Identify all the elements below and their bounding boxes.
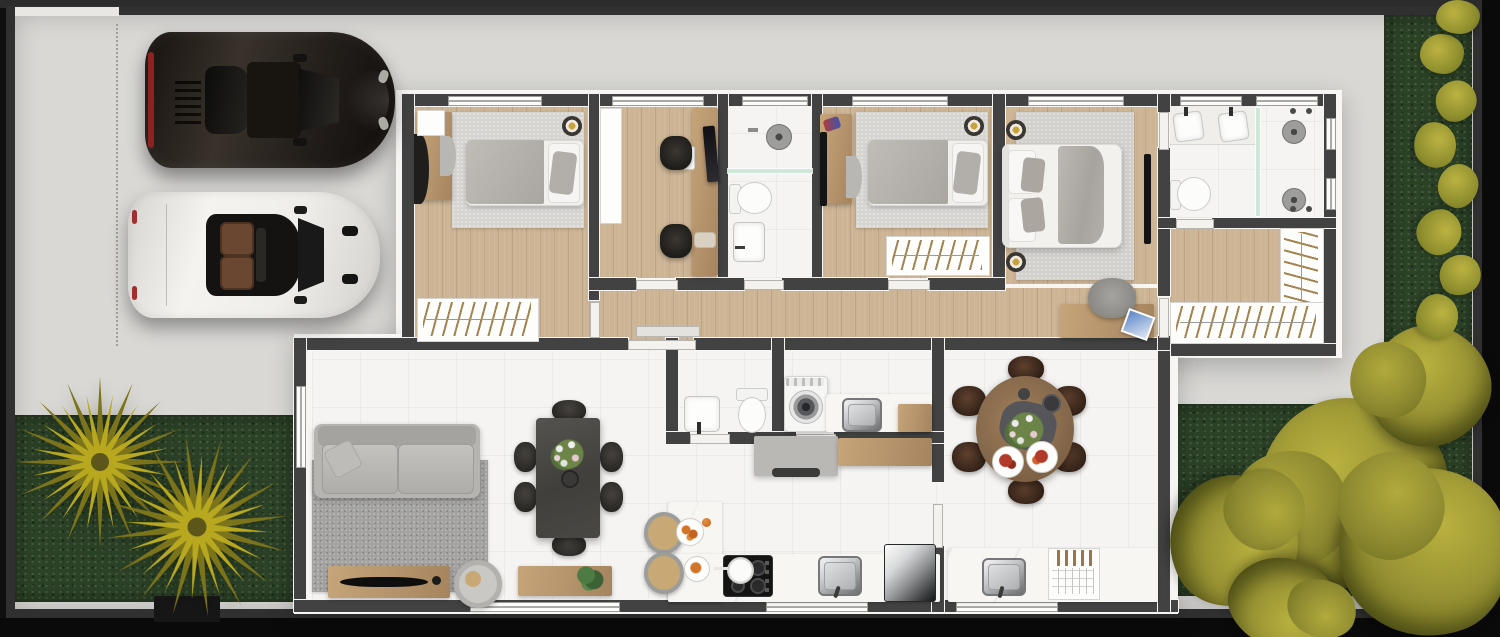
side-table-center <box>465 571 481 587</box>
side-mirror <box>294 206 307 214</box>
shower-valve <box>1306 206 1312 212</box>
shower-valve <box>1306 108 1312 114</box>
tv-remote <box>432 576 441 585</box>
parking-dotted-line <box>116 24 118 346</box>
bed-duvet <box>868 140 948 204</box>
nightstand <box>417 110 445 136</box>
wardrobe-hangers <box>1176 306 1316 338</box>
window <box>448 96 542 106</box>
bedroom-2-tv <box>820 132 827 206</box>
wardrobe-hangers <box>892 240 982 270</box>
plate-of-food <box>676 518 704 546</box>
cup <box>1018 388 1030 400</box>
fridge <box>884 544 936 602</box>
bathroom-partition-door <box>1176 219 1214 229</box>
bed-pillow-grey <box>953 151 982 196</box>
bedside-lamp <box>1006 252 1026 272</box>
side-mirror <box>294 296 307 304</box>
front-gate <box>15 7 119 16</box>
utility-sink <box>982 558 1026 596</box>
bed-pillow-grey <box>549 151 578 196</box>
bedroom-2-chair-arc <box>846 156 862 198</box>
dining-chair <box>514 442 537 472</box>
kitchen-door <box>933 504 943 548</box>
hood-vent <box>342 226 358 236</box>
dish-rack-wires <box>1052 568 1094 594</box>
washbasin <box>733 222 765 262</box>
office-door <box>636 280 678 290</box>
wc-toilet-bowl <box>738 397 766 433</box>
shower-valve <box>1290 108 1296 114</box>
windshield <box>298 218 324 292</box>
sofa-cushion <box>398 444 474 494</box>
wall <box>772 338 784 444</box>
wall <box>1158 94 1170 112</box>
rear-vents <box>175 76 201 124</box>
wall <box>294 338 306 612</box>
bed-pillow-grey <box>1020 157 1045 193</box>
bed-throw-blanket <box>1058 146 1104 244</box>
office-chair <box>660 224 692 258</box>
wc-washbasin <box>684 396 720 432</box>
plate-of-food <box>684 556 710 582</box>
vanity-basin <box>1217 110 1250 143</box>
master-bathroom-door <box>1159 112 1169 150</box>
orange-fruit <box>702 518 711 527</box>
side-mirror <box>293 138 307 146</box>
window <box>1256 96 1318 106</box>
office-tray <box>694 232 716 248</box>
hedge-shrub <box>1420 34 1464 74</box>
dining-chair <box>514 482 537 512</box>
bedroom-1-door <box>590 302 600 338</box>
window <box>612 96 704 106</box>
wall <box>718 94 728 284</box>
cooking-pot <box>727 557 754 584</box>
wall <box>1158 344 1336 356</box>
wall <box>932 444 944 482</box>
window <box>1028 96 1124 106</box>
wall <box>1158 336 1170 350</box>
car-roof <box>247 62 301 138</box>
wall <box>402 94 414 350</box>
bed-pillow-grey <box>1020 197 1045 233</box>
shower-head <box>766 124 792 150</box>
shower-valve <box>1290 206 1296 212</box>
bedroom-1-chair-arc <box>440 136 456 176</box>
dish-rack-handles <box>1052 550 1094 566</box>
wall <box>589 278 636 290</box>
tail-light-strip <box>148 52 154 148</box>
bed-duvet <box>466 140 544 204</box>
floor-plan-canvas <box>0 0 1500 637</box>
window <box>742 96 808 106</box>
center-console <box>256 228 266 282</box>
wall <box>666 338 678 444</box>
master-wall-tv <box>1144 154 1151 244</box>
wall <box>589 94 599 300</box>
wardrobe-hangers <box>423 302 531 336</box>
window <box>470 602 620 612</box>
wc-door <box>690 434 730 444</box>
bar-stool <box>644 552 684 594</box>
plant <box>574 564 604 592</box>
vanity-faucet <box>1229 107 1233 116</box>
office-chair <box>660 136 692 170</box>
closet-door <box>1159 298 1169 338</box>
office-cabinet <box>600 108 622 224</box>
dining-chair <box>600 482 623 512</box>
window <box>1180 96 1242 106</box>
toilet-bowl <box>1177 177 1211 211</box>
white-convertible <box>128 192 380 318</box>
vanity-faucet <box>1184 107 1188 116</box>
side-door-opening <box>1326 178 1336 210</box>
wall <box>694 338 1168 350</box>
tv <box>340 577 428 587</box>
cooktop-knobs <box>765 560 769 592</box>
seat-brown <box>220 222 254 256</box>
bathroom-door <box>744 280 784 290</box>
basin-faucet <box>735 246 745 249</box>
island-vent <box>772 468 820 477</box>
wall <box>782 278 888 290</box>
wall <box>666 432 690 444</box>
shower-head <box>1282 120 1306 144</box>
ceiling-lamp <box>964 116 984 136</box>
side-door-opening <box>1326 118 1336 150</box>
sliding-door <box>628 340 696 350</box>
wall <box>932 338 944 444</box>
side-mirror <box>293 54 307 62</box>
hood-vent <box>342 274 358 284</box>
window <box>956 602 1058 612</box>
wardrobe-hangers <box>1284 232 1318 302</box>
laundry-wood-counter <box>898 404 932 432</box>
glass-partition <box>728 169 812 173</box>
burner <box>750 578 766 594</box>
vanity-basin <box>1172 110 1205 143</box>
pot-handle <box>714 567 728 570</box>
wall <box>1212 218 1336 228</box>
tail-light <box>132 210 137 224</box>
wall <box>1158 218 1176 228</box>
washer-drum <box>789 390 823 424</box>
kitchen-wood-counter <box>838 438 932 466</box>
corner-shrub <box>1436 0 1480 34</box>
wall <box>928 278 1005 290</box>
washer-controls <box>786 378 824 386</box>
kitchen-sink <box>818 556 862 596</box>
hall-console <box>636 326 700 337</box>
laundry-sink <box>842 398 882 432</box>
trunk-line <box>166 204 167 306</box>
rear-window <box>205 66 249 134</box>
toilet-bowl <box>737 182 772 214</box>
tail-light <box>132 286 137 300</box>
window <box>766 602 868 612</box>
flower-vase <box>561 470 579 488</box>
glass-partition <box>1256 108 1260 216</box>
bedroom-2-door <box>888 280 930 290</box>
dining-chair <box>600 442 623 472</box>
wall <box>1158 338 1170 612</box>
wall <box>676 278 744 290</box>
nook-plate <box>1026 441 1058 473</box>
seat-brown <box>220 256 254 290</box>
shower-arm <box>748 128 758 132</box>
wc-faucet <box>697 422 701 434</box>
window <box>296 386 306 468</box>
ceiling-lamp <box>562 116 582 136</box>
window <box>852 96 948 106</box>
bedside-lamp <box>1006 120 1026 140</box>
dark-sports-car <box>145 32 395 168</box>
cup <box>1042 394 1061 413</box>
nook-plate <box>992 446 1024 478</box>
